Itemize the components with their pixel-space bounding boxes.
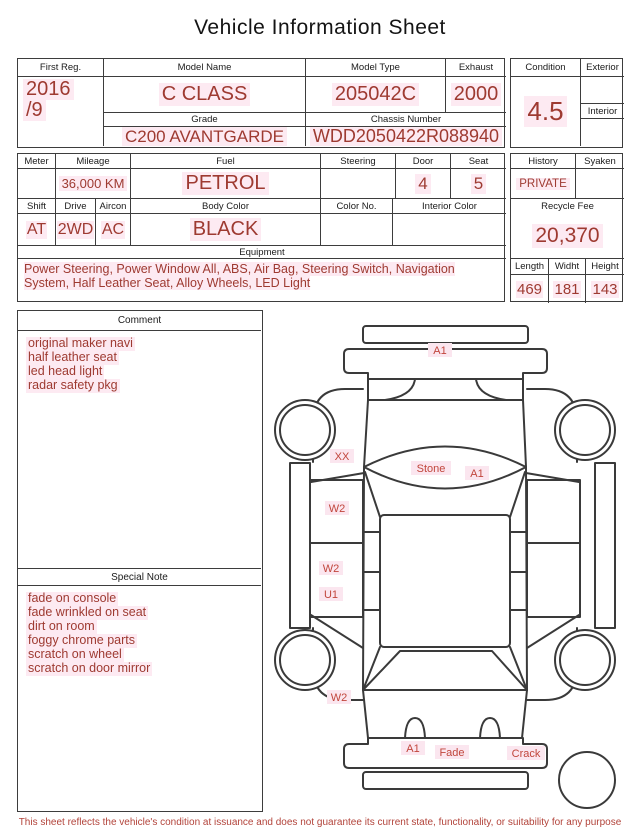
seat-value: 5 xyxy=(451,169,506,199)
chassis-number-label: Chassis Number xyxy=(306,113,506,127)
special-note-line: foggy chrome parts xyxy=(26,634,137,648)
interior-color-label: Interior Color xyxy=(393,199,506,214)
exhaust-label: Exhaust xyxy=(446,59,506,77)
height-label: Height xyxy=(586,259,624,275)
mileage-value: 36,000 KM xyxy=(56,169,131,199)
comment-header: Comment xyxy=(18,311,261,331)
model-type-label: Model Type xyxy=(306,59,446,77)
body-color-value: BLACK xyxy=(131,214,321,246)
vehicle-information-sheet: Vehicle Information Sheet First Reg. 201… xyxy=(0,0,640,835)
history-recycle-block: History Syaken PRIVATE Recycle Fee 20,37… xyxy=(510,153,623,302)
aircon-label: Aircon xyxy=(96,199,131,214)
special-note-body: fade on console fade wrinkled on seat di… xyxy=(18,586,261,810)
damage-label-front-bumper: A1 xyxy=(433,345,446,357)
recycle-fee-value: 20,370 xyxy=(511,214,624,259)
comment-line: original maker navi xyxy=(26,337,135,351)
damage-label-rear-bumper-crack: Crack xyxy=(512,748,541,760)
steering-value xyxy=(321,169,396,199)
grade-value: C200 AVANTGARDE xyxy=(104,127,306,146)
syaken-value xyxy=(576,169,624,199)
length-value: 469 xyxy=(511,275,549,303)
door-label: Door xyxy=(396,154,451,169)
length-label: Length xyxy=(511,259,549,275)
interior-color-value xyxy=(393,214,506,246)
exhaust-value: 2000 xyxy=(446,77,506,113)
width-value: 181 xyxy=(549,275,586,303)
first-reg-label: First Reg. xyxy=(18,59,104,77)
syaken-label: Syaken xyxy=(576,154,624,169)
chassis-number-value: WDD2050422R088940 xyxy=(306,127,506,146)
model-name-label: Model Name xyxy=(104,59,306,77)
drive-label: Drive xyxy=(56,199,96,214)
aircon-value: AC xyxy=(96,214,131,246)
first-reg-value: 2016 /9 xyxy=(18,77,104,146)
damage-label-windshield-a1: A1 xyxy=(470,468,483,480)
shift-value: AT xyxy=(18,214,56,246)
meter-value xyxy=(18,169,56,199)
drive-value: 2WD xyxy=(56,214,96,246)
history-label: History xyxy=(511,154,576,169)
door-value: 4 xyxy=(396,169,451,199)
fuel-label: Fuel xyxy=(131,154,321,169)
special-note-line: scratch on door mirror xyxy=(26,662,152,676)
main-info-table: First Reg. 2016 /9 Model Name C CLASS Mo… xyxy=(17,58,505,148)
special-note-line: scratch on wheel xyxy=(26,648,124,662)
spare-wheel-circle xyxy=(559,752,615,808)
comment-line: radar safety pkg xyxy=(26,379,120,393)
recycle-fee-label: Recycle Fee xyxy=(511,199,624,214)
car-damage-diagram: A1 XX Stone A1 W2 W2 U1 W2 A1 Fade Crack xyxy=(265,310,640,812)
model-type-value: 205042C xyxy=(306,77,446,113)
color-no-value xyxy=(321,214,393,246)
damage-label-front-door: W2 xyxy=(329,503,346,515)
condition-block: Condition 4.5 Exterior Interior xyxy=(510,58,623,148)
special-note-line: fade on console xyxy=(26,592,118,606)
comment-line: led head light xyxy=(26,365,104,379)
disclaimer-text: This sheet reflects the vehicle's condit… xyxy=(0,817,640,828)
damage-labels: A1 XX Stone A1 W2 W2 U1 W2 A1 Fade Crack xyxy=(323,345,541,760)
page-title: Vehicle Information Sheet xyxy=(0,16,640,40)
steering-label: Steering xyxy=(321,154,396,169)
shift-label: Shift xyxy=(18,199,56,214)
interior-label: Interior xyxy=(581,104,624,119)
model-name-value: C CLASS xyxy=(104,77,306,113)
seat-label: Seat xyxy=(451,154,506,169)
height-value: 143 xyxy=(586,275,624,303)
mileage-label: Mileage xyxy=(56,154,131,169)
fuel-value: PETROL xyxy=(131,169,321,199)
damage-label-rear-door-u1: U1 xyxy=(324,589,338,601)
exterior-label: Exterior xyxy=(581,59,624,77)
damage-label-rear-fender: W2 xyxy=(331,692,348,704)
exterior-value xyxy=(581,77,624,104)
meter-label: Meter xyxy=(18,154,56,169)
comment-body: original maker navi half leather seat le… xyxy=(18,331,261,568)
width-label: Widht xyxy=(549,259,586,275)
grade-label: Grade xyxy=(104,113,306,127)
notes-column: Comment original maker navi half leather… xyxy=(17,310,263,812)
condition-value: 4.5 xyxy=(511,77,581,146)
damage-label-rear-bumper-a1: A1 xyxy=(406,743,419,755)
special-note-line: fade wrinkled on seat xyxy=(26,606,148,620)
damage-label-windshield-stone: Stone xyxy=(417,463,446,475)
equipment-text: Power Steering, Power Window All, ABS, A… xyxy=(18,259,506,301)
damage-label-rear-door-w2: W2 xyxy=(323,563,340,575)
special-note-header: Special Note xyxy=(18,568,261,586)
special-note-line: dirt on room xyxy=(26,620,97,634)
condition-label: Condition xyxy=(511,59,581,77)
damage-label-rear-bumper-fade: Fade xyxy=(439,747,464,759)
damage-label-highlights xyxy=(319,343,545,760)
body-color-label: Body Color xyxy=(131,199,321,214)
damage-label-front-fender: XX xyxy=(335,451,350,463)
spec-table: Meter Mileage Fuel Steering Door Seat 36… xyxy=(17,153,505,302)
history-value: PRIVATE xyxy=(511,169,576,199)
equipment-label: Equipment xyxy=(18,246,506,259)
comment-line: half leather seat xyxy=(26,351,119,365)
interior-value xyxy=(581,119,624,146)
color-no-label: Color No. xyxy=(321,199,393,214)
